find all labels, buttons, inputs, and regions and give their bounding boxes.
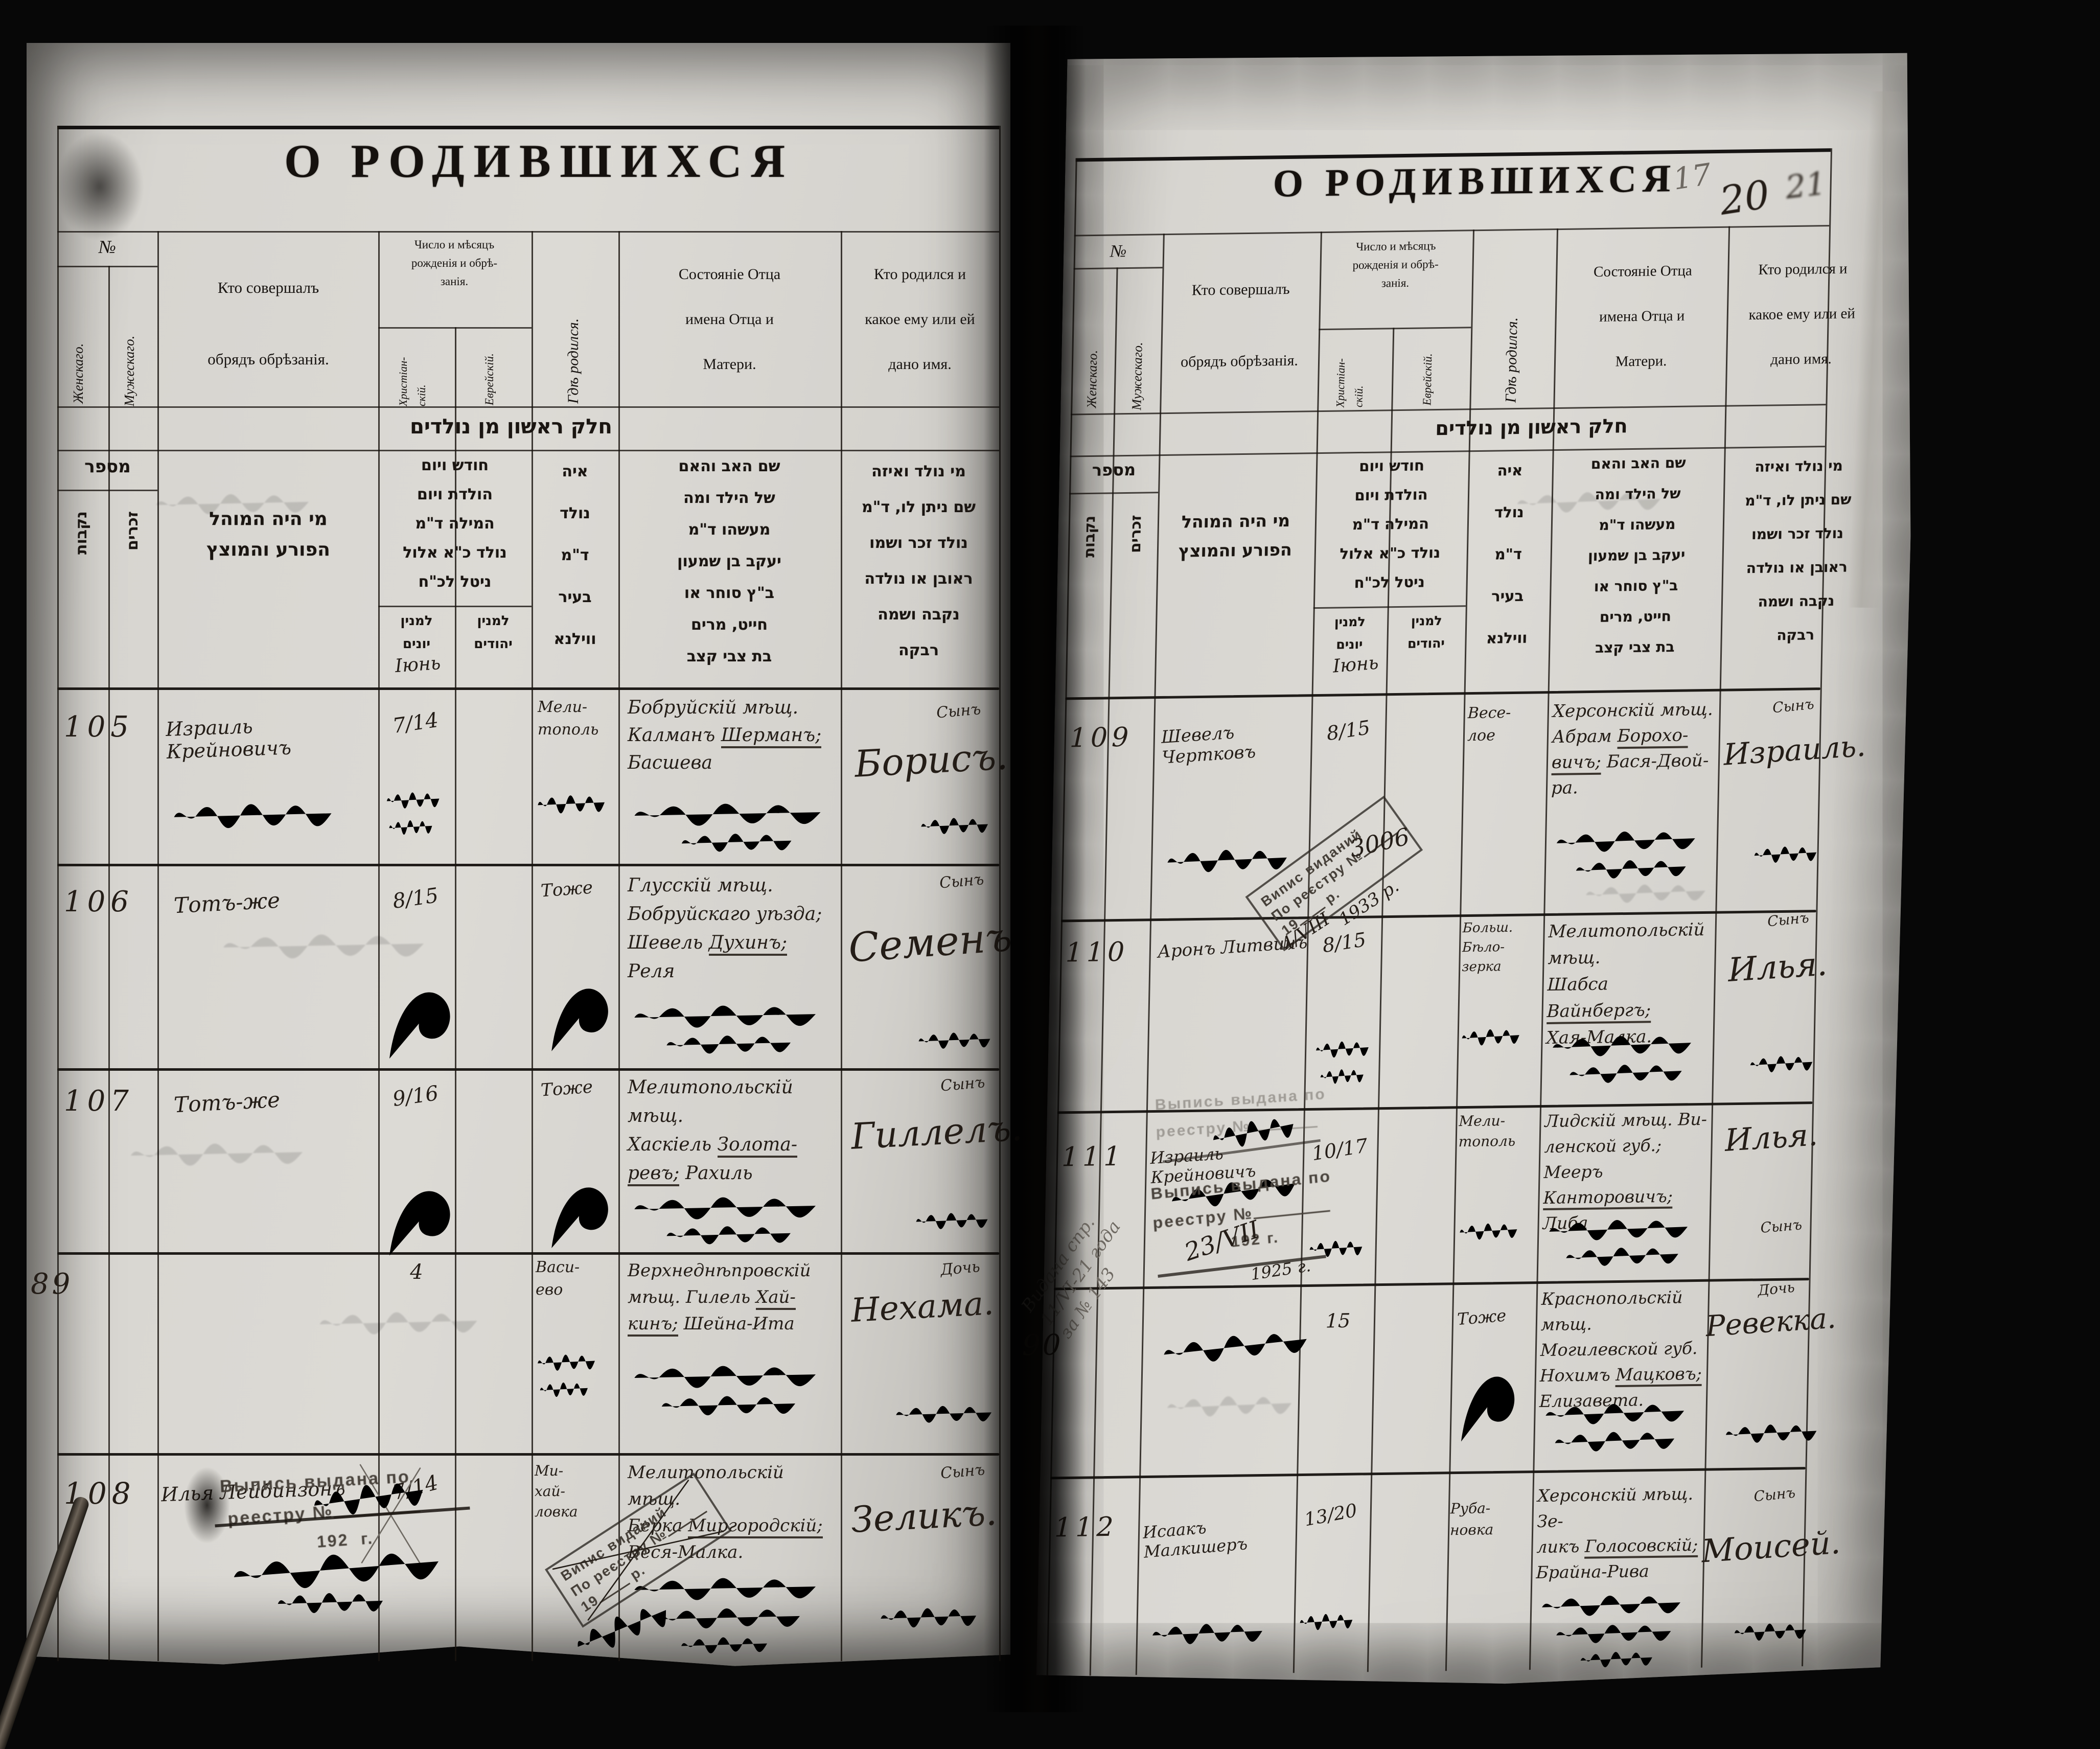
bleed-through bbox=[1584, 881, 1712, 905]
page-number-pencil: 17 bbox=[1671, 156, 1713, 196]
hebrew-header-child: נקבה ושמה bbox=[1723, 592, 1870, 611]
col-header-number: № bbox=[1088, 242, 1149, 262]
father-info: Херсонскій мѣщ. Зе- ликъ Голосовскій; Бр… bbox=[1536, 1481, 1704, 1585]
hebrew-header-father: חייט, מרים bbox=[1552, 607, 1719, 626]
hebrew-header-date: המילה ד"מ bbox=[1316, 514, 1466, 534]
col-header-date: Число и мѣсяцъ bbox=[1321, 239, 1471, 254]
col-header-father: Состояніе Отца bbox=[1561, 262, 1725, 281]
hebrew-header-place: ווילנא bbox=[1467, 629, 1547, 647]
hebrew-header-date: הולדת ויום bbox=[1317, 485, 1466, 504]
hebrew-cursive-note bbox=[1554, 827, 1703, 855]
hebrew-cursive-note bbox=[1547, 1215, 1695, 1243]
child-name: Илья. bbox=[1724, 1117, 1817, 1159]
hebrew-header-date: חודש ויום bbox=[1317, 456, 1467, 475]
hebrew-cursive-note bbox=[1579, 1649, 1656, 1669]
hebrew-header-place: איה bbox=[1470, 461, 1550, 479]
scanned-register-spread: О РОДИВШИХСЯ № Женскаго. Мужескаго. Кто … bbox=[0, 0, 2100, 1749]
hebrew-cursive-note bbox=[1150, 1620, 1268, 1647]
bleed-through bbox=[1514, 488, 1668, 515]
row-number: 111 bbox=[1061, 1141, 1144, 1172]
hebrew-cursive-note bbox=[1543, 1399, 1692, 1427]
birthplace-line: зерка bbox=[1462, 956, 1539, 977]
col-header-birthplace: Гдѣ родился. bbox=[1503, 244, 1523, 403]
ditto-flourish bbox=[1456, 1358, 1524, 1446]
hebrew-header-child: ראובן או נולדה bbox=[1724, 558, 1870, 577]
col-header-performer: Кто совершалъ bbox=[1165, 280, 1317, 300]
child-name: Ревекка. bbox=[1705, 1303, 1814, 1344]
hebrew-cursive-note bbox=[1749, 1053, 1816, 1074]
hebrew-cursive-note bbox=[1315, 1038, 1372, 1059]
hebrew-cursive-note bbox=[1320, 1067, 1366, 1086]
birthplace-line: Весе- bbox=[1467, 701, 1544, 725]
page-number-smudged: 21 bbox=[1784, 164, 1828, 206]
birthplace-line: лое bbox=[1467, 724, 1544, 747]
birthplace-line: Руба- bbox=[1450, 1497, 1528, 1520]
hebrew-header-greek-count: למנין bbox=[1314, 614, 1386, 630]
hebrew-cursive-note bbox=[1574, 856, 1692, 881]
hebrew-header-place: בעיר bbox=[1468, 587, 1548, 605]
hebrew-cursive-note bbox=[1553, 1428, 1681, 1454]
hebrew-header-mohel: הפורע והמוצץ bbox=[1159, 539, 1312, 561]
col-header-christian-date: Христіан- bbox=[1333, 333, 1348, 407]
hebrew-header-jewish-count: יהודים bbox=[1390, 635, 1462, 651]
birthplace-line: Мели- bbox=[1459, 1110, 1536, 1132]
hebrew-header-child: שם ניתן לו, ד"מ bbox=[1725, 491, 1872, 510]
hebrew-header-father: מעשהו ד"מ bbox=[1554, 515, 1721, 534]
hebrew-header-father: יעקב בן שמעון bbox=[1553, 546, 1720, 565]
hebrew-header-child: מי נולד ואיזה bbox=[1726, 457, 1872, 476]
hebrew-header-date: ניטל לכ"ח bbox=[1314, 572, 1464, 592]
hebrew-header-place: ד"מ bbox=[1468, 545, 1548, 563]
col-header-jewish-date: Еврейскій. bbox=[1420, 331, 1435, 405]
col-header-child: какое ему или ей bbox=[1730, 305, 1874, 324]
hebrew-cursive-note bbox=[1299, 1611, 1355, 1632]
child-name: Моисей. bbox=[1701, 1525, 1814, 1570]
hebrew-cursive-note bbox=[1733, 1620, 1810, 1643]
col-header-date: рожденія и обрѣ- bbox=[1321, 257, 1470, 272]
hebrew-header-child: נולד זכר ושמו bbox=[1724, 524, 1871, 543]
child-name: Илья. bbox=[1727, 946, 1820, 989]
col-header-performer: обрядъ обрѣзанія. bbox=[1164, 352, 1316, 371]
hebrew-cursive-note bbox=[1554, 1621, 1677, 1645]
row-number: 90 bbox=[1022, 1328, 1094, 1362]
col-header-father: имена Отца и bbox=[1560, 307, 1724, 326]
col-header-female: Женскаго. bbox=[1084, 288, 1102, 408]
hebrew-cursive-note bbox=[1753, 843, 1820, 865]
hebrew-header-males: זכרים bbox=[1124, 515, 1144, 684]
birthplace-line: тополь bbox=[1458, 1131, 1535, 1152]
hebrew-cursive-note bbox=[1724, 1421, 1821, 1445]
hebrew-cursive-note bbox=[1459, 1221, 1520, 1242]
row-number: 110 bbox=[1065, 936, 1147, 968]
bleed-through bbox=[1165, 1392, 1298, 1419]
hebrew-cursive-note bbox=[1539, 1591, 1688, 1619]
hebrew-header-father: בת צבי קצב bbox=[1552, 638, 1718, 657]
row-number: 109 bbox=[1069, 722, 1151, 753]
father-info: Херсонскій мѣщ. Абрам Борохо- вичъ; Бася… bbox=[1551, 697, 1719, 801]
col-header-father: Матери. bbox=[1559, 352, 1723, 371]
birthplace-line: Бѣло- bbox=[1462, 937, 1539, 957]
hebrew-cursive-note bbox=[1550, 1031, 1699, 1059]
hebrew-cursive-note bbox=[1165, 845, 1294, 875]
col-header-child: дано имя. bbox=[1729, 350, 1873, 369]
birthplace-line: новка bbox=[1450, 1518, 1527, 1541]
hebrew-header-mohel: מי היה המוהל bbox=[1159, 510, 1313, 532]
child-name: Израиль. bbox=[1723, 731, 1826, 772]
col-header-date: занія. bbox=[1321, 275, 1470, 291]
birth-date: 15 bbox=[1310, 1309, 1367, 1332]
hebrew-header-number: מספר bbox=[1072, 459, 1157, 480]
hebrew-cursive-note bbox=[1564, 1244, 1684, 1268]
col-header-male: Мужескаго. bbox=[1129, 283, 1147, 410]
birthplace-line: Больш. bbox=[1462, 917, 1539, 938]
col-header-christian-date: скій. bbox=[1352, 359, 1366, 407]
row-number: 112 bbox=[1054, 1511, 1137, 1543]
hebrew-header-jewish-count: למנין bbox=[1391, 613, 1463, 629]
hebrew-header-females: נקבות bbox=[1078, 516, 1098, 684]
col-header-child: Кто родился и bbox=[1731, 260, 1875, 279]
page-number-ink: 20 bbox=[1717, 171, 1772, 224]
hebrew-header-child: רבקה bbox=[1722, 626, 1868, 645]
father-info: Краснопольскій мѣщ. Могилевской губ. Нох… bbox=[1539, 1284, 1708, 1414]
hebrew-header-father: ב"ץ סוחר או bbox=[1553, 577, 1719, 595]
page-title: О РОДИВШИХСЯ bbox=[1219, 156, 1731, 207]
hebrew-cursive-note bbox=[1567, 1061, 1688, 1085]
hebrew-header-father: שם האב והאם bbox=[1555, 454, 1722, 473]
hebrew-header-date: נולד כ"א אלול bbox=[1315, 543, 1465, 563]
hebrew-header-greek-count: יונים bbox=[1313, 636, 1386, 652]
hebrew-cursive-note bbox=[1461, 1026, 1522, 1048]
